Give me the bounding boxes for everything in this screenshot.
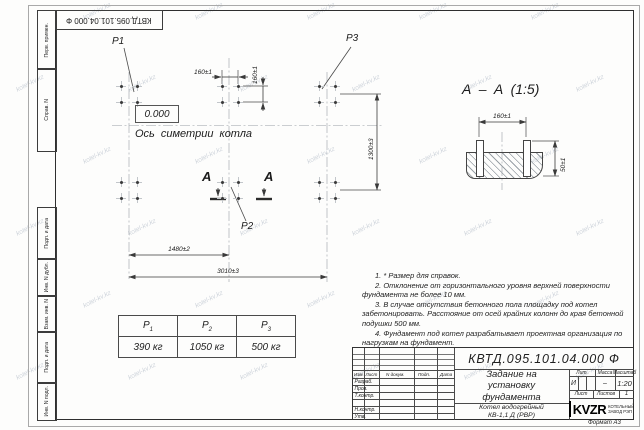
margin-box-podp-data-2: Подп. и дата [37,331,57,384]
tb-lit-label: Лит. [569,369,595,376]
tb-doc-title: Задание на установку фундамента [454,369,569,403]
load-table-header-row: P1 P2 P3 [119,316,296,337]
tb-col-podp: Подп. [418,372,430,377]
tb-mass-value: – [595,376,615,390]
note-1: 1. * Размер для справок. [362,271,630,281]
tb-product-cell: Котел водогрейный КВ-1,1 Д (РВР) [454,403,569,420]
anchor-bolt-dot [318,197,321,200]
margin-box-label: Взам. инв. N [44,299,50,329]
rotated-doc-number-text: КВТД.095.101.04.000 Ф [66,16,152,25]
p-symbol: P [261,320,268,331]
margin-box-inv-dubl: Инв. N дубл. [37,258,57,297]
margin-box-label: Подп. и дата [44,218,50,249]
tb-sheet-label: Лист [569,390,593,398]
load-table-header-p1: P1 [119,316,178,337]
dim-1480: 1480±2 [149,246,209,253]
margin-box-label: Инв. N подл. [44,386,50,417]
tb-row-utv: Утв. [355,414,366,420]
tb-row-razrab: Разраб. [355,379,373,385]
tb-col-date: Дата [440,372,452,377]
load-value-p1: 390 кг [119,337,178,358]
anchor-bolt-dot [221,101,224,104]
anchor-bolt-dot [318,101,321,104]
tb-row-nkontr: Н.контр. [355,407,376,413]
load-point-label-p1: P1 [112,36,124,47]
anchor-bolt-dot [136,197,139,200]
anchor-bolt-section-left [476,140,484,177]
tb-scale-value: 1:20 [615,376,634,390]
note-4: 4. Фундамент под котел разрабатывает про… [362,329,630,348]
rotated-doc-number-stamp: КВТД.095.101.04.000 Ф [55,10,163,30]
load-table-header-p3: P3 [237,316,296,337]
anchor-bolt-dot [136,85,139,88]
load-table: P1 P2 P3 390 кг 1050 кг 500 кг [118,315,296,358]
tb-sheets-value: 1 [619,390,634,398]
kvzr-logo-subtitle: КОТЕЛЬНЫЙ ЗАВОД РЭП [608,404,634,414]
anchor-bolt-dot [136,181,139,184]
dim-160-horizontal: 160±1 [188,69,218,76]
anchor-bolt-dot [237,181,240,184]
tb-doc-title-text: Задание на установку фундамента [472,369,552,404]
p-symbol: P [202,320,209,331]
tb-row-tkontr: Т.контр. [355,393,375,399]
kvzr-sub-line2: ЗАВОД РЭП [608,409,634,414]
anchor-bolt-dot [334,181,337,184]
tb-sheets-label: Листов [593,390,619,398]
section-dim-50: 50±1 [560,158,567,172]
title-block: Изм. Лист N докум. Подп. Дата Разраб. Пр… [352,347,634,420]
load-point-label-p3: P3 [346,33,358,44]
anchor-bolt-dot [318,181,321,184]
load-value-p2: 1050 кг [178,337,237,358]
kvzr-logo-text: KVZR [573,402,606,417]
tb-col-doc: N докум. [386,372,405,377]
section-letter-left: A [202,169,211,184]
anchor-bolt-dot [221,181,224,184]
anchor-bolt-dot [334,85,337,88]
tb-scale-label: Масштаб [615,369,634,376]
tb-product-line1: Котел водогрейный [479,404,544,412]
anchor-bolt-dot [120,197,123,200]
section-view-title: A – A (1:5) [462,81,539,97]
dim-1300: 1300±3 [368,138,375,160]
note-2: 2. Отклонение от горизонтального уровня … [362,281,630,300]
dim-3010: 3010±3 [198,268,258,275]
anchor-bolt-dot [221,85,224,88]
margin-box-inv-podl: Инв. N подл. [37,382,57,421]
load-point-label-p2: P2 [241,221,253,232]
note-3: 3. В случае отсутствия бетонного пола пл… [362,300,630,329]
elevation-mark: 0.000 [135,105,179,123]
p-subscript: 3 [268,327,271,333]
margin-box-sprav-n: Справ. N [37,68,57,152]
tb-row-prov: Пров. [355,386,368,392]
tb-col-izm: Изм. [354,372,364,377]
anchor-bolt-dot [237,101,240,104]
anchor-bolt-dot [334,101,337,104]
margin-box-perv-primen: Перв. примен. [37,10,57,70]
anchor-bolt-section-right [523,140,531,177]
anchor-bolt-dot [120,181,123,184]
anchor-bolt-dot [318,85,321,88]
tb-col-list: Лист [366,372,378,377]
symmetry-axis-label: Ось симетрии котла [135,128,252,140]
margin-box-podp-data-1: Подп. и дата [37,207,57,260]
anchor-bolt-dot [237,197,240,200]
anchor-bolt-dot [334,197,337,200]
margin-box-label: Перв. примен. [44,23,50,58]
load-table-value-row: 390 кг 1050 кг 500 кг [119,337,296,358]
p-symbol: P [143,320,150,331]
section-dim-160: 160±1 [487,113,517,120]
anchor-bolt-dot [237,85,240,88]
kvzr-coil-icon [569,401,571,417]
p-subscript: 1 [150,327,153,333]
format-label: Формат А3 [588,420,621,426]
tb-lit-value: И [569,376,578,390]
margin-box-label: Инв. N дубл. [44,262,50,292]
anchor-bolt-dot [136,101,139,104]
anchor-bolt-dot [120,101,123,104]
anchor-bolt-dot [120,85,123,88]
load-value-p3: 500 кг [237,337,296,358]
p-subscript: 2 [209,327,212,333]
tb-company-cell: KVZR КОТЕЛЬНЫЙ ЗАВОД РЭП [569,398,634,420]
margin-box-label: Справ. N [44,99,50,121]
elevation-value: 0.000 [144,109,169,120]
tb-doc-number: КВТД.095.101.04.000 Ф [454,348,634,369]
dim-160-vertical: 160±1 [252,66,259,84]
margin-box-label: Подп. и дата [44,342,50,373]
section-letter-right: A [264,169,273,184]
drawing-sheet: kotel-kv.kzkotel-kv.kzkotel-kv.kzkotel-k… [0,0,644,430]
tb-product-line2: КВ-1,1 Д (РВР) [488,412,535,420]
margin-box-vzam-inv: Взам. инв. N [37,295,57,333]
anchor-bolt-dot [221,197,224,200]
load-table-header-p2: P2 [178,316,237,337]
notes-block: 1. * Размер для справок. 2. Отклонение о… [362,271,630,348]
